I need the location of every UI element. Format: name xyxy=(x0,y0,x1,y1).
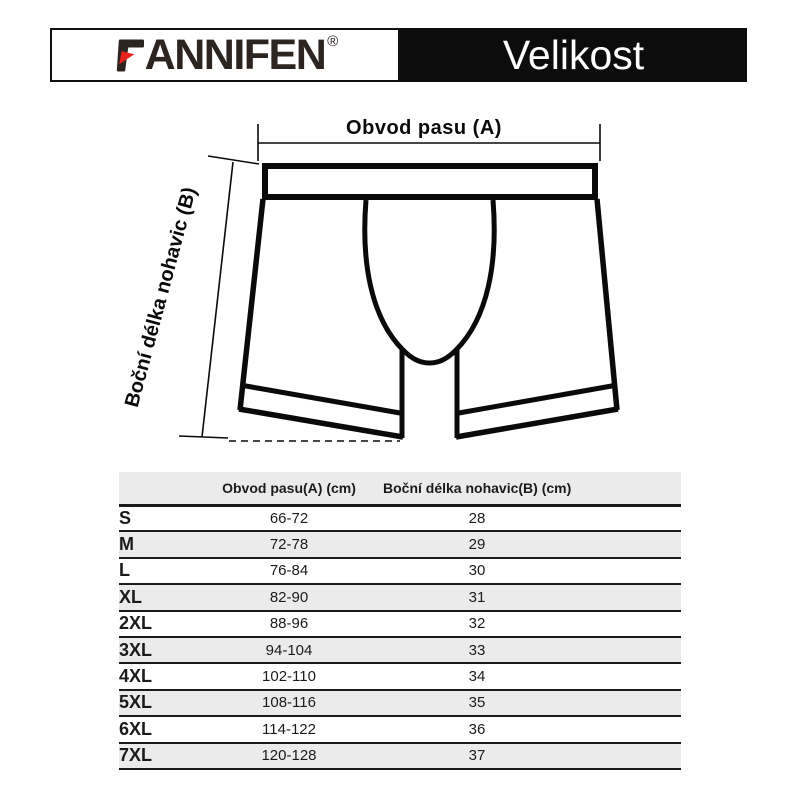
length-cell: 31 xyxy=(383,584,571,610)
length-measure-label: Boční délka nohavic (B) xyxy=(121,185,201,410)
table-row: 3XL 94-104 33 xyxy=(119,637,681,663)
col-header-waist: Obvod pasu(A) (cm) xyxy=(195,472,383,505)
size-cell: 5XL xyxy=(119,690,195,716)
table-row: XL 82-90 31 xyxy=(119,584,681,610)
length-cell: 35 xyxy=(383,690,571,716)
spacer-cell xyxy=(571,663,681,689)
table-row: 2XL 88-96 32 xyxy=(119,611,681,637)
spacer-cell xyxy=(571,584,681,610)
boxer-diagram: Obvod pasu (A) Boční délka nohavic (B) xyxy=(85,95,670,470)
header-bar: ANNIFEN ® Velikost xyxy=(50,28,747,82)
right-leg-hem xyxy=(456,409,618,437)
table-row: 6XL 114-122 36 xyxy=(119,716,681,742)
waist-cell: 94-104 xyxy=(195,637,383,663)
waist-cell: 82-90 xyxy=(195,584,383,610)
right-leg-outer-edge xyxy=(597,199,617,410)
spacer-cell xyxy=(571,716,681,742)
size-cell: 3XL xyxy=(119,637,195,663)
col-header-size xyxy=(119,472,195,505)
spacer-cell xyxy=(571,531,681,557)
length-cell: 33 xyxy=(383,637,571,663)
size-cell: L xyxy=(119,558,195,584)
size-cell: 7XL xyxy=(119,743,195,769)
waist-cell: 114-122 xyxy=(195,716,383,742)
left-leg-hem xyxy=(239,409,403,437)
waist-cell: 102-110 xyxy=(195,663,383,689)
length-measure-tick-bottom xyxy=(179,436,228,438)
waist-cell: 72-78 xyxy=(195,531,383,557)
table-row: 7XL 120-128 37 xyxy=(119,743,681,769)
waist-cell: 108-116 xyxy=(195,690,383,716)
size-cell: 4XL xyxy=(119,663,195,689)
col-header-spacer xyxy=(571,472,681,505)
table-row: M 72-78 29 xyxy=(119,531,681,557)
registered-mark: ® xyxy=(327,33,338,50)
size-cell: 2XL xyxy=(119,611,195,637)
brand-logo: ANNIFEN ® xyxy=(50,28,400,82)
length-measure-line xyxy=(202,162,233,437)
length-cell: 29 xyxy=(383,531,571,557)
left-leg-cuff-top xyxy=(243,386,403,414)
spacer-cell xyxy=(571,558,681,584)
table-row: L 76-84 30 xyxy=(119,558,681,584)
length-cell: 28 xyxy=(383,505,571,531)
length-cell: 37 xyxy=(383,743,571,769)
length-cell: 32 xyxy=(383,611,571,637)
length-cell: 34 xyxy=(383,663,571,689)
waist-measure-label: Obvod pasu (A) xyxy=(346,117,502,139)
waist-cell: 76-84 xyxy=(195,558,383,584)
pouch-curve xyxy=(365,200,494,363)
size-cell: XL xyxy=(119,584,195,610)
brand-f-icon xyxy=(112,35,144,76)
table-row: 4XL 102-110 34 xyxy=(119,663,681,689)
table-row: S 66-72 28 xyxy=(119,505,681,531)
spacer-cell xyxy=(571,505,681,531)
length-cell: 30 xyxy=(383,558,571,584)
length-cell: 36 xyxy=(383,716,571,742)
waist-cell: 120-128 xyxy=(195,743,383,769)
size-cell: S xyxy=(119,505,195,531)
spacer-cell xyxy=(571,611,681,637)
size-cell: M xyxy=(119,531,195,557)
right-leg-cuff-top xyxy=(456,386,615,414)
table-row: 5XL 108-116 35 xyxy=(119,690,681,716)
waist-cell: 66-72 xyxy=(195,505,383,531)
spacer-cell xyxy=(571,690,681,716)
size-table: Obvod pasu(A) (cm) Boční délka nohavic(B… xyxy=(119,472,681,770)
page-title: Velikost xyxy=(400,28,747,82)
waist-cell: 88-96 xyxy=(195,611,383,637)
waistband xyxy=(265,166,595,197)
spacer-cell xyxy=(571,743,681,769)
brand-name: ANNIFEN xyxy=(145,34,326,77)
col-header-length: Boční délka nohavic(B) (cm) xyxy=(383,472,571,505)
table-header-row: Obvod pasu(A) (cm) Boční délka nohavic(B… xyxy=(119,472,681,505)
left-leg-outer-edge xyxy=(240,199,263,410)
size-cell: 6XL xyxy=(119,716,195,742)
spacer-cell xyxy=(571,637,681,663)
